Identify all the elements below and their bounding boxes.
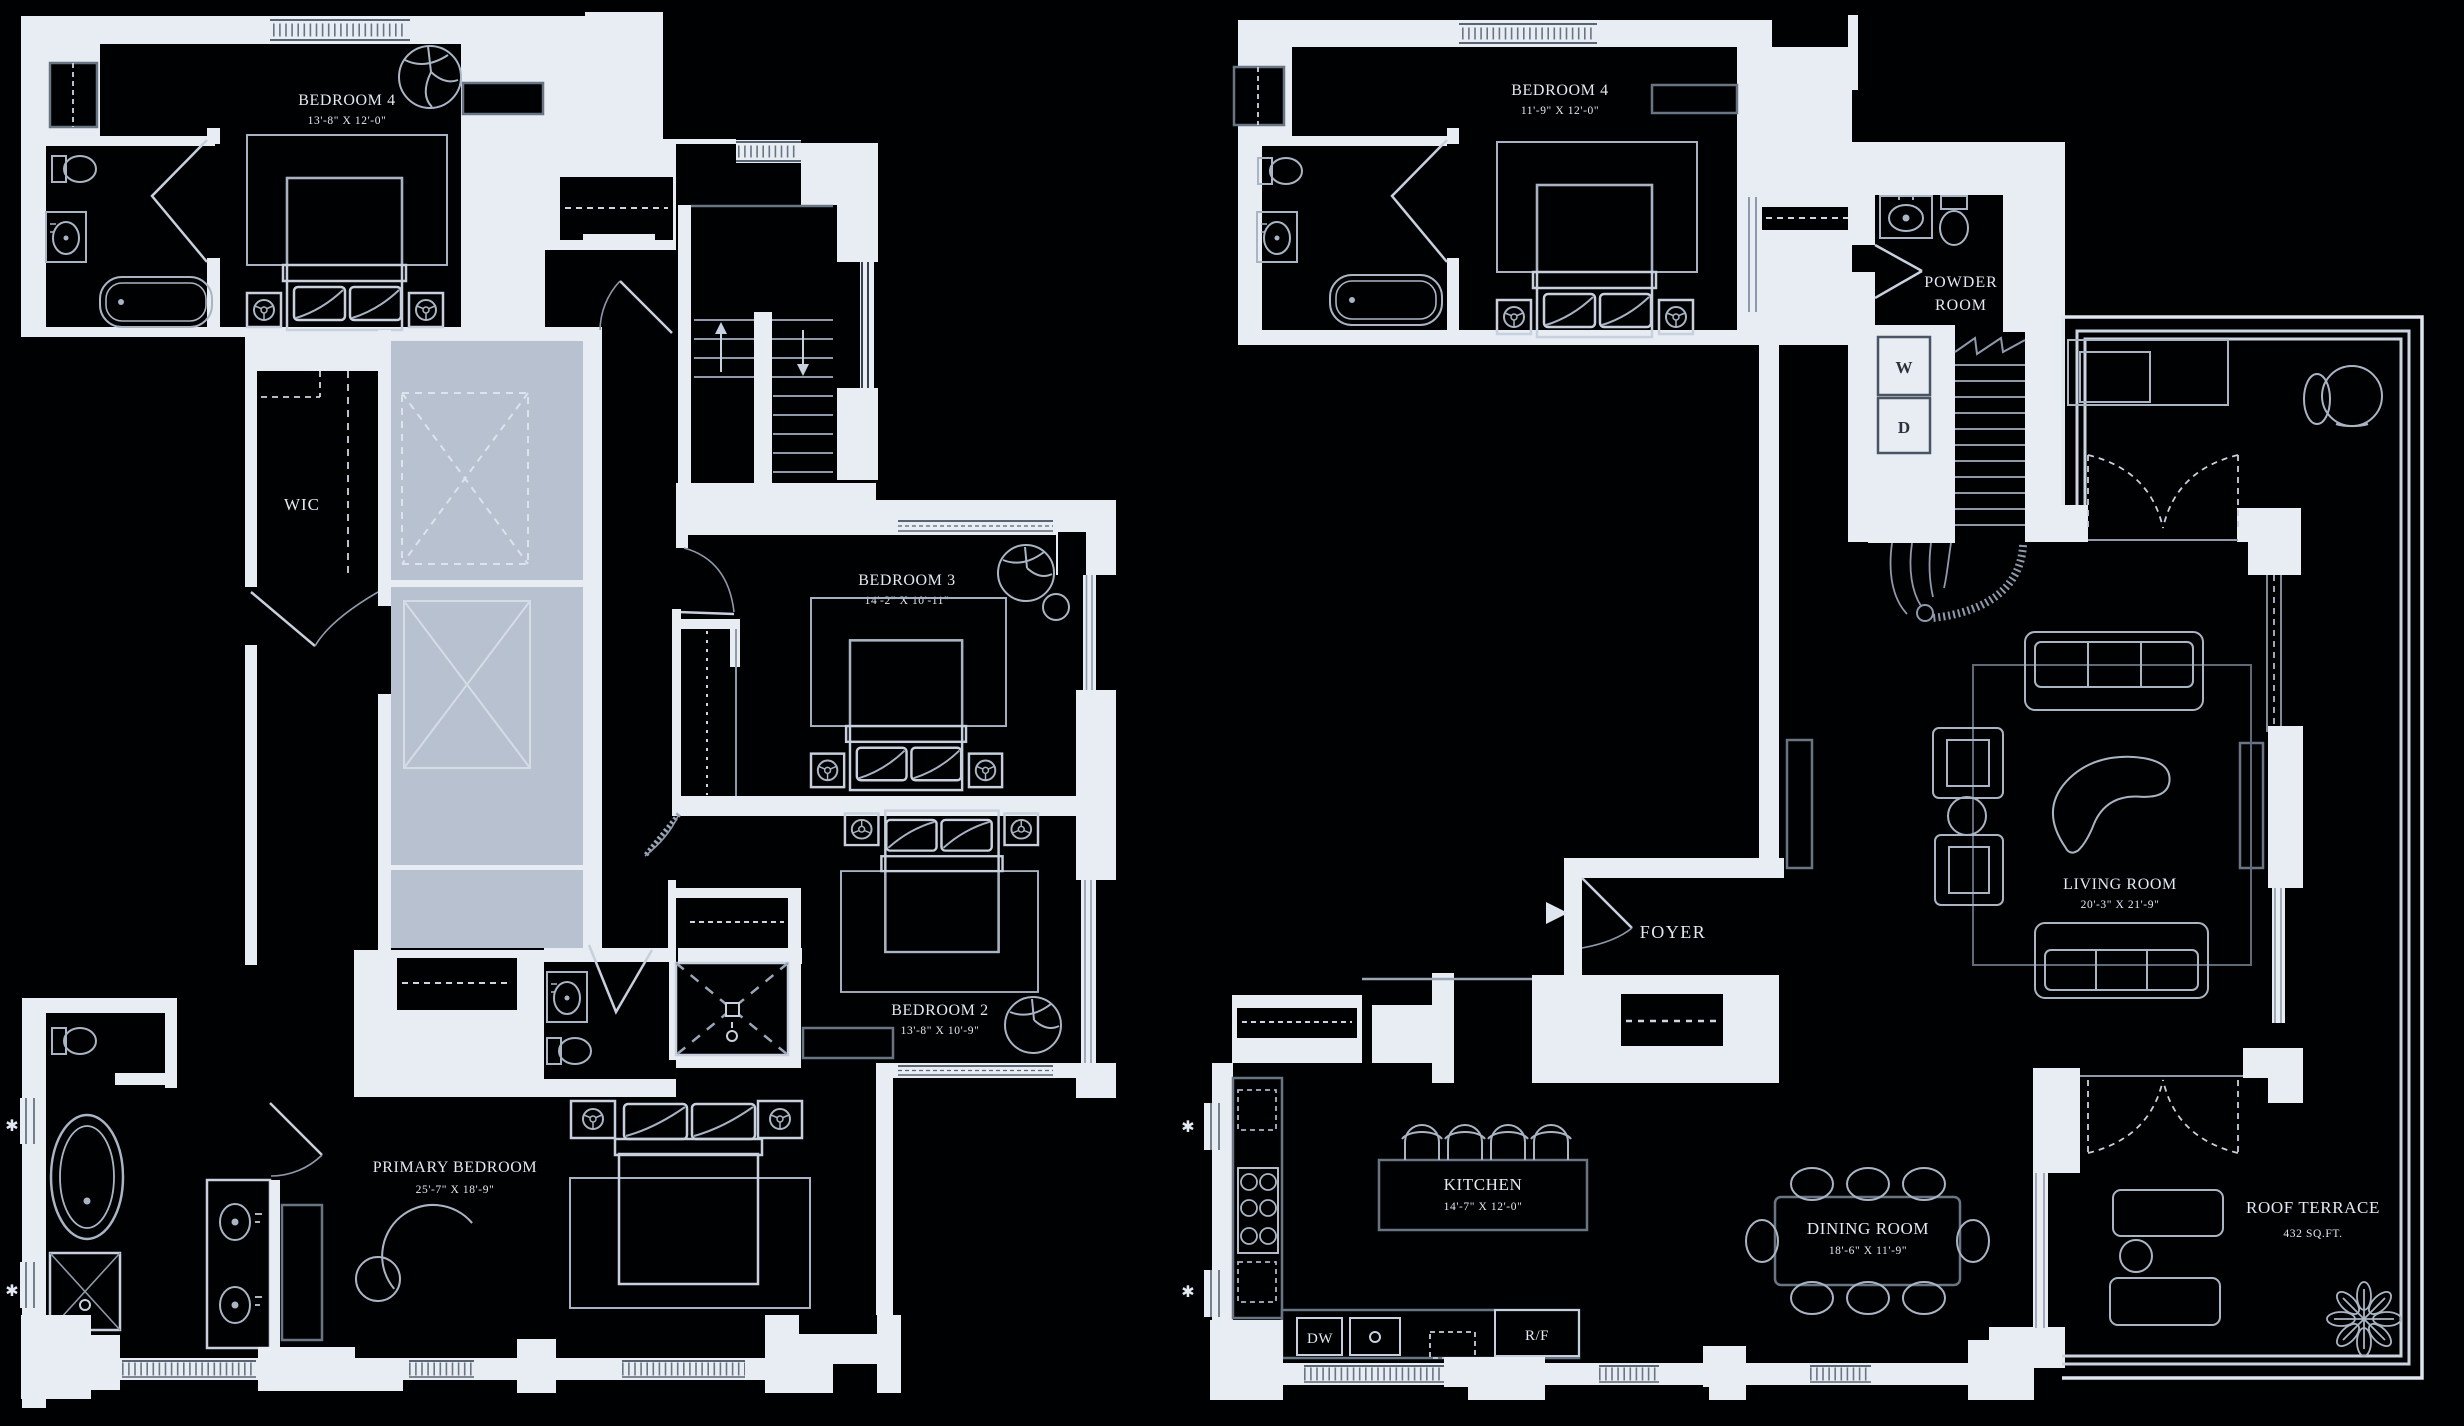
svg-text:✱: ✱ [1181, 1284, 1194, 1301]
svg-text:11'-9" X 12'-0": 11'-9" X 12'-0" [1521, 105, 1599, 117]
svg-text:14'-7" X 12'-0": 14'-7" X 12'-0" [1444, 1201, 1523, 1213]
svg-text:DW: DW [1307, 1331, 1333, 1347]
svg-text:✱: ✱ [1181, 1119, 1194, 1136]
svg-text:D: D [1898, 418, 1910, 437]
svg-text:20'-3" X 21'-9": 20'-3" X 21'-9" [2081, 899, 2160, 911]
svg-text:DINING ROOM: DINING ROOM [1807, 1219, 1929, 1238]
svg-text:POWDER: POWDER [1924, 274, 1998, 291]
svg-text:PRIMARY BEDROOM: PRIMARY BEDROOM [373, 1159, 537, 1176]
svg-text:W: W [1896, 358, 1913, 377]
svg-text:432 SQ.FT.: 432 SQ.FT. [2283, 1228, 2342, 1240]
svg-text:BEDROOM 4: BEDROOM 4 [298, 92, 395, 109]
svg-text:14'-2" X 10'-11": 14'-2" X 10'-11" [865, 595, 950, 607]
svg-text:BEDROOM 3: BEDROOM 3 [858, 572, 955, 589]
svg-text:BEDROOM 4: BEDROOM 4 [1511, 82, 1608, 99]
svg-text:18'-6" X 11'-9": 18'-6" X 11'-9" [1829, 1245, 1907, 1257]
svg-text:ROOM: ROOM [1935, 297, 1987, 314]
svg-text:13'-8" X 12'-0": 13'-8" X 12'-0" [308, 115, 387, 127]
svg-text:ROOF TERRACE: ROOF TERRACE [2246, 1198, 2380, 1217]
svg-text:WIC: WIC [284, 495, 320, 514]
svg-text:LIVING ROOM: LIVING ROOM [2063, 876, 2177, 893]
svg-text:R/F: R/F [1525, 1328, 1549, 1344]
svg-text:✱: ✱ [5, 1118, 18, 1135]
svg-text:13'-8" X 10'-9": 13'-8" X 10'-9" [901, 1025, 980, 1037]
svg-text:FOYER: FOYER [1640, 922, 1707, 942]
svg-text:25'-7" X 18'-9": 25'-7" X 18'-9" [416, 1184, 495, 1196]
svg-text:BEDROOM 2: BEDROOM 2 [891, 1002, 988, 1019]
svg-text:✱: ✱ [5, 1283, 18, 1300]
svg-text:KITCHEN: KITCHEN [1444, 1175, 1523, 1194]
